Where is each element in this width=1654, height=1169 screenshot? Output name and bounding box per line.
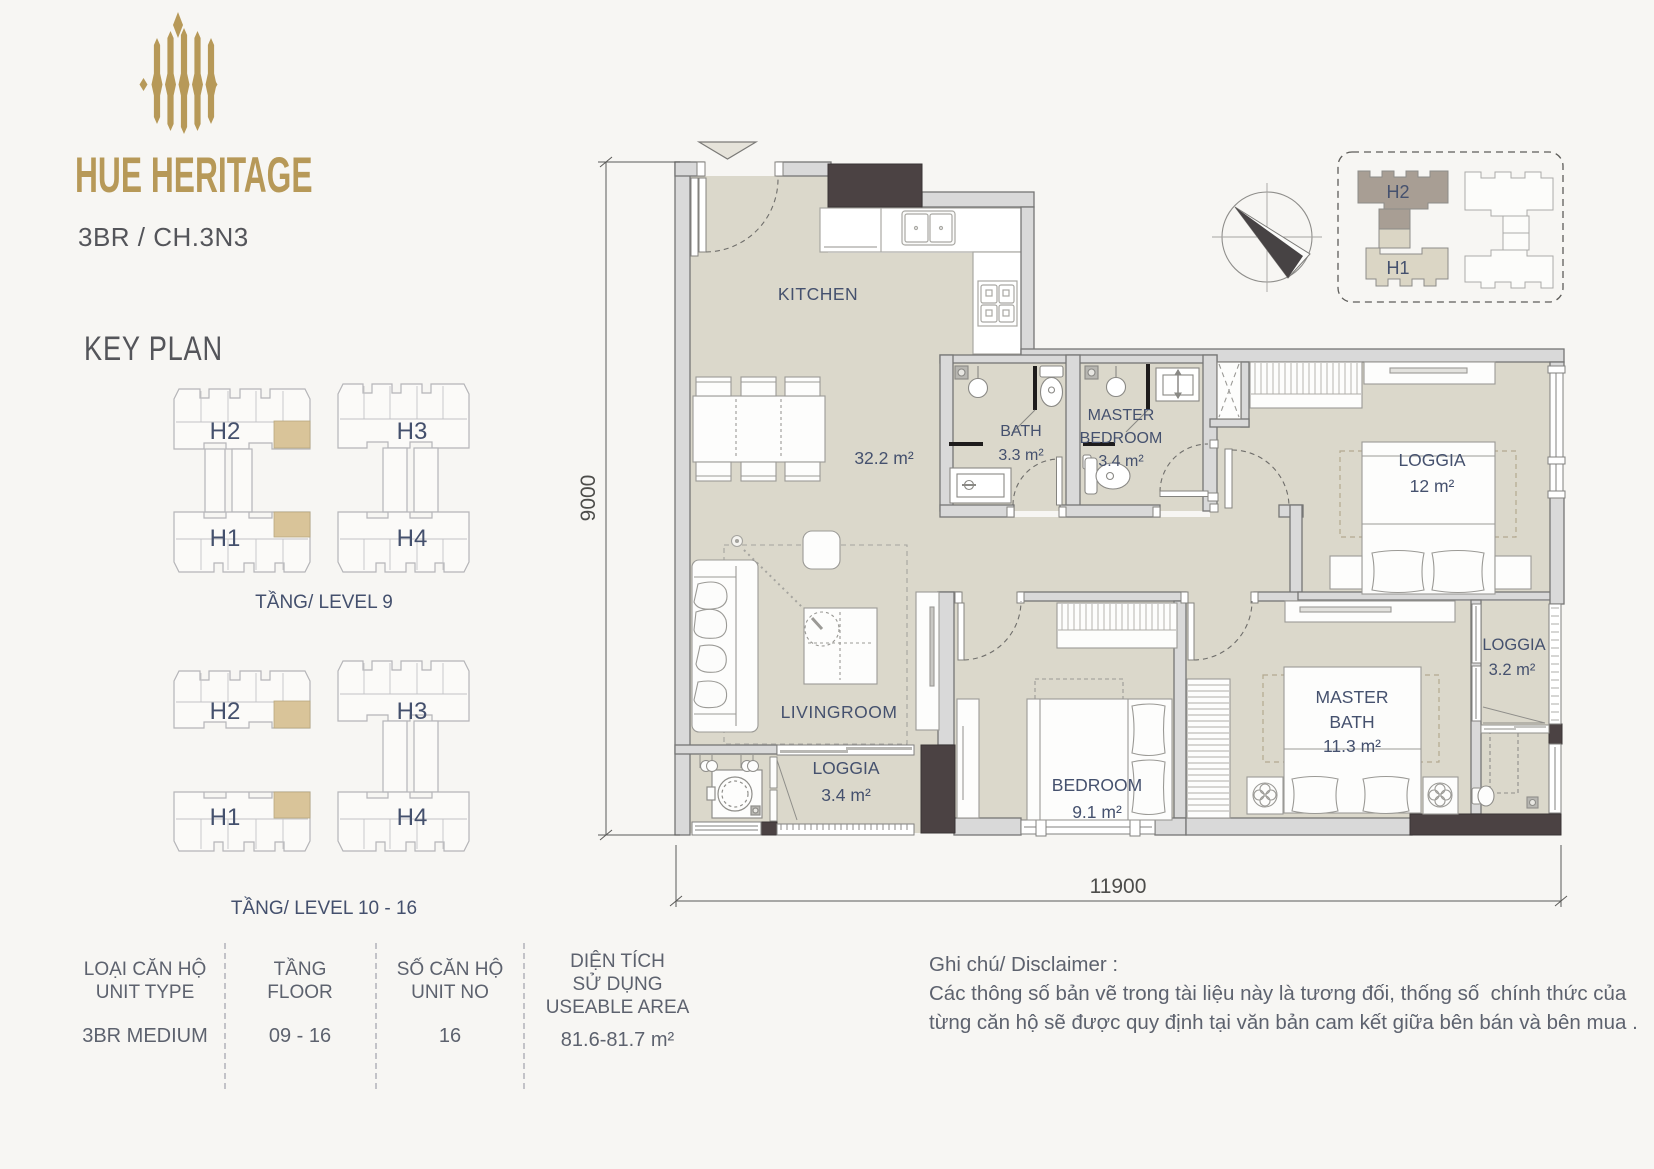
svg-text:11900: 11900 — [1090, 875, 1147, 898]
svg-text:TẦNG/ LEVEL 10 - 16: TẦNG/ LEVEL 10 - 16 — [231, 897, 417, 919]
svg-text:3.3 m²: 3.3 m² — [998, 447, 1044, 464]
svg-text:32.2 m²: 32.2 m² — [854, 448, 913, 468]
svg-text:3.4 m²: 3.4 m² — [821, 785, 871, 805]
svg-text:11.3 m²: 11.3 m² — [1323, 736, 1381, 756]
svg-text:BATH: BATH — [1329, 712, 1374, 732]
svg-text:H3: H3 — [397, 418, 428, 445]
svg-text:LIVINGROOM: LIVINGROOM — [781, 702, 898, 722]
svg-text:H2: H2 — [210, 418, 241, 445]
svg-text:H1: H1 — [210, 525, 241, 552]
svg-text:H1: H1 — [210, 804, 241, 831]
svg-text:BEDROOM: BEDROOM — [1080, 430, 1163, 447]
svg-text:3.4 m²: 3.4 m² — [1098, 453, 1144, 470]
svg-text:LOGGIA: LOGGIA — [812, 758, 879, 778]
svg-text:9000: 9000 — [580, 475, 600, 522]
svg-text:H2: H2 — [210, 698, 241, 725]
svg-text:3.2 m²: 3.2 m² — [1489, 661, 1536, 679]
svg-text:KITCHEN: KITCHEN — [778, 284, 858, 304]
svg-text:LOGGIA: LOGGIA — [1398, 450, 1465, 470]
svg-text:BATH: BATH — [1000, 423, 1041, 440]
svg-text:H2: H2 — [1386, 182, 1409, 202]
svg-text:TẦNG/ LEVEL 9: TẦNG/ LEVEL 9 — [255, 591, 393, 613]
svg-text:12 m²: 12 m² — [1410, 476, 1455, 496]
svg-text:H4: H4 — [397, 804, 428, 831]
svg-text:BEDROOM: BEDROOM — [1052, 775, 1142, 795]
svg-text:H1: H1 — [1386, 258, 1409, 278]
svg-text:MASTER: MASTER — [1316, 687, 1389, 707]
svg-text:H4: H4 — [397, 525, 428, 552]
svg-text:9.1 m²: 9.1 m² — [1072, 802, 1122, 822]
svg-text:LOGGIA: LOGGIA — [1482, 636, 1545, 654]
svg-text:MASTER: MASTER — [1088, 407, 1155, 424]
